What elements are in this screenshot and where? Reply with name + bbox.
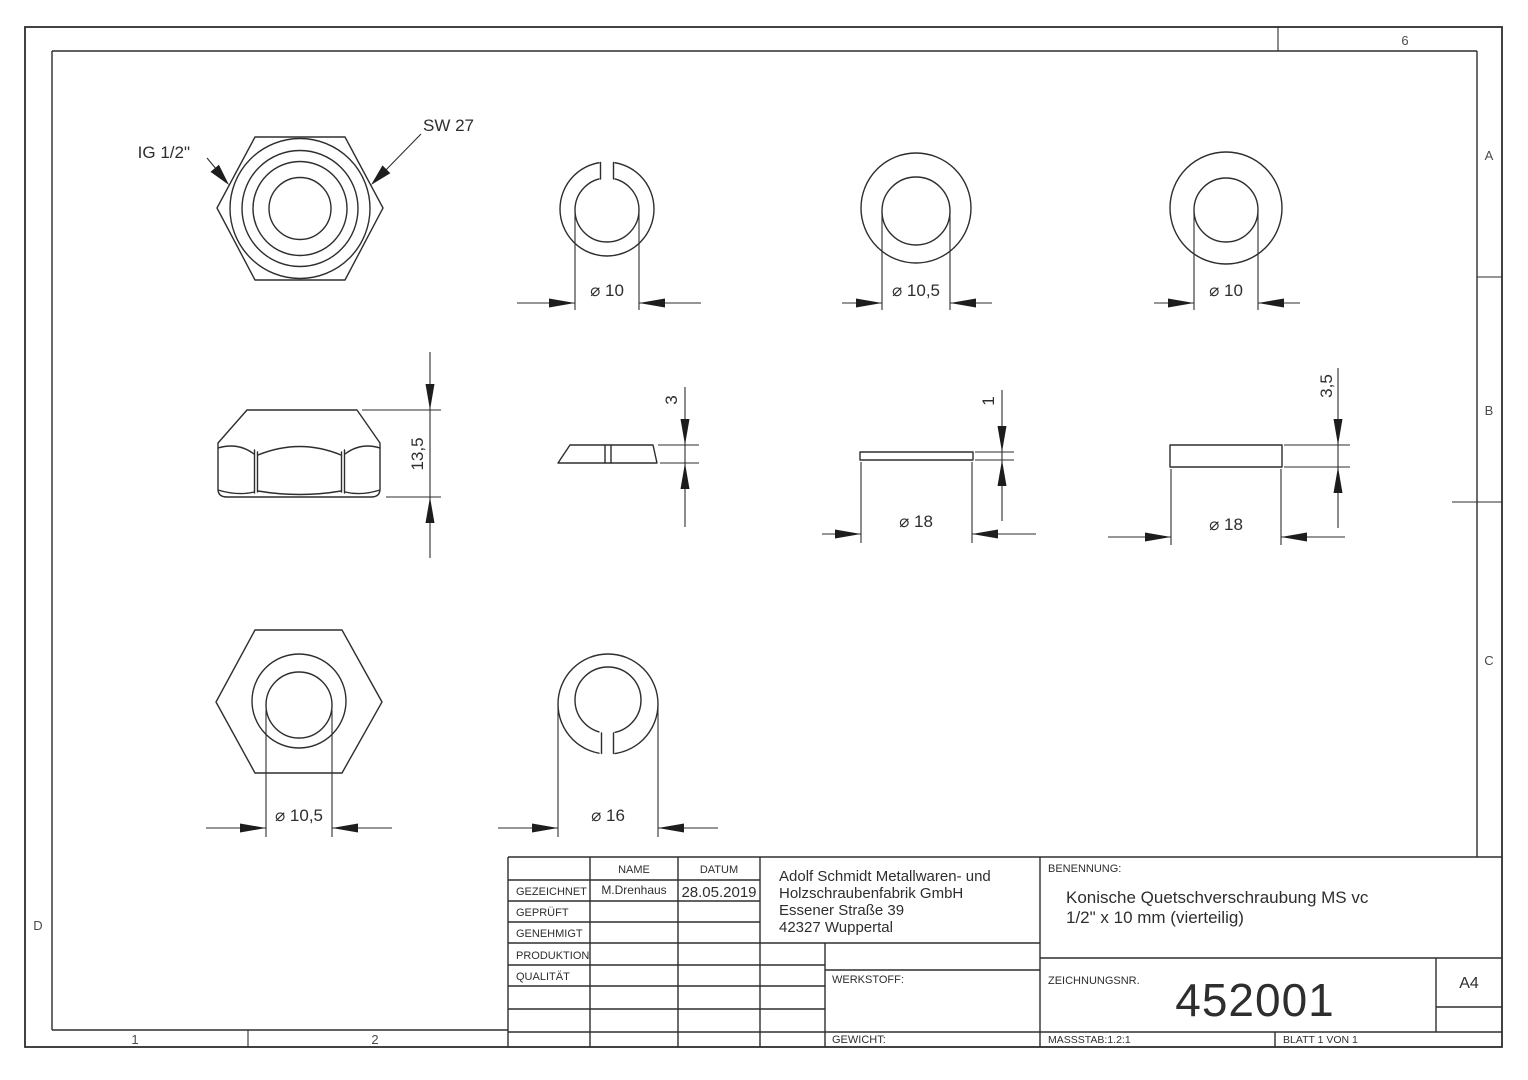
dimension-arrow xyxy=(998,460,1007,486)
part-circle xyxy=(861,153,971,263)
part-circle xyxy=(242,151,358,267)
dimension-arrow xyxy=(681,419,690,445)
zone-label-a: A xyxy=(1485,148,1494,163)
dimension-arrow xyxy=(240,824,266,833)
thread-label: IG 1/2" xyxy=(138,143,190,162)
company-line-4: 42327 Wuppertal xyxy=(779,919,893,936)
row-label-qualitaet: QUALITÄT xyxy=(516,971,570,983)
dimension-35: 3,5 xyxy=(1284,368,1350,528)
facet-arc xyxy=(218,490,254,494)
company-line-2: Holzschraubenfabrik GmbH xyxy=(779,885,963,902)
part-outline xyxy=(1170,445,1282,467)
facet-arc xyxy=(258,491,341,495)
dimension-arrow xyxy=(1168,299,1194,308)
view-nut-side: 13,5 xyxy=(218,352,441,558)
dimension-arrow xyxy=(1145,533,1171,542)
view-nut-back: ⌀ 10,5 xyxy=(206,630,392,837)
facet-arc xyxy=(345,446,380,454)
facet-arc xyxy=(345,490,380,494)
col-header-name: NAME xyxy=(618,864,650,876)
dimension-3: 3 xyxy=(658,387,699,527)
row-label-geprueft: GEPRÜFT xyxy=(516,907,569,919)
zeichnungsnr-label: ZEICHNUNGSNR. xyxy=(1048,975,1140,987)
part-outline xyxy=(860,452,973,460)
view-clamp-ring-outer: ⌀ 16 xyxy=(498,654,718,837)
dimension-text: ⌀ 16 xyxy=(591,806,625,825)
dimension-1: 1 xyxy=(975,390,1014,521)
part-outline-hexagon xyxy=(216,630,382,773)
dimension-arrow xyxy=(1258,299,1284,308)
dimension-arrow xyxy=(658,824,684,833)
dimension-arrow xyxy=(1334,419,1343,445)
row-label-produktion: PRODUKTION xyxy=(516,950,589,962)
drawing-canvas: 6 A B C D 1 2 IG 1/2" SW 27 xyxy=(0,0,1528,1080)
werkstoff-label: WERKSTOFF: xyxy=(832,974,904,986)
part-circle xyxy=(230,139,370,279)
col-header-datum: DATUM xyxy=(700,864,738,876)
zone-label-d: D xyxy=(33,918,42,933)
dimension-text: 13,5 xyxy=(408,437,427,470)
gewicht-label: GEWICHT: xyxy=(832,1034,886,1046)
dimension-arrow xyxy=(426,384,435,410)
part-circle-bore xyxy=(1194,178,1258,242)
view-clamp-ring-front: ⌀ 10 xyxy=(517,159,701,310)
slit-mask xyxy=(600,159,615,181)
dimension-arrow xyxy=(549,299,575,308)
company-line-3: Essener Straße 39 xyxy=(779,902,904,919)
part-circle-bore xyxy=(575,667,641,733)
part-circle xyxy=(1170,152,1282,264)
dimension-text: ⌀ 10 xyxy=(590,281,624,300)
part-circle-bore xyxy=(269,178,331,240)
dimension-arrow xyxy=(681,463,690,489)
dimension-arrow xyxy=(998,426,1007,452)
dimension-text: ⌀ 10,5 xyxy=(275,806,323,825)
dimension-d10: ⌀ 10 xyxy=(517,213,701,310)
zone-label-2: 2 xyxy=(371,1032,378,1047)
facet-arc xyxy=(258,447,341,456)
zone-label-b: B xyxy=(1485,403,1494,418)
view-ring-10-front: ⌀ 10 xyxy=(1154,152,1300,310)
dimension-text: ⌀ 18 xyxy=(899,512,933,531)
zone-label-c: C xyxy=(1484,653,1493,668)
drawing-sheet: 6 A B C D 1 2 IG 1/2" SW 27 xyxy=(0,0,1528,1080)
zone-label-1: 1 xyxy=(131,1032,138,1047)
part-circle-bore xyxy=(882,177,950,245)
part-outline xyxy=(218,410,380,497)
benennung-label: BENENNUNG: xyxy=(1048,863,1121,875)
drawing-number: 452001 xyxy=(1175,974,1335,1026)
company-line-1: Adolf Schmidt Metallwaren- und xyxy=(779,868,991,885)
row-label-gezeichnet: GEZEICHNET xyxy=(516,886,587,898)
part-title-line-1: Konische Quetschverschraubung MS vc xyxy=(1066,888,1369,907)
gezeichnet-datum: 28.05.2019 xyxy=(681,884,756,901)
dimension-d18b: ⌀ 18 xyxy=(1108,469,1345,545)
dimension-text: ⌀ 10,5 xyxy=(892,281,940,300)
part-circle-bore xyxy=(575,178,639,242)
dimension-arrow xyxy=(332,824,358,833)
dimension-arrow xyxy=(426,497,435,523)
view-washer-thick-side: 3,5 ⌀ 18 xyxy=(1108,368,1350,545)
dimension-135: 13,5 xyxy=(362,352,441,558)
sheet-format: A4 xyxy=(1459,975,1479,992)
facet-arc xyxy=(218,446,254,454)
view-nut-front: IG 1/2" SW 27 xyxy=(138,116,474,280)
gezeichnet-name: M.Drenhaus xyxy=(601,883,666,897)
title-block: NAME DATUM GEZEICHNET M.Drenhaus 28.05.2… xyxy=(508,857,1502,1047)
dimension-text: 3,5 xyxy=(1317,374,1336,398)
massstab-value: MASSSTAB:1.2:1 xyxy=(1048,1034,1131,1046)
dimension-arrow xyxy=(835,530,861,539)
view-clamp-ring-side: 3 xyxy=(558,387,699,527)
dimension-text: ⌀ 10 xyxy=(1209,281,1243,300)
zone-label-6: 6 xyxy=(1401,33,1408,48)
dimension-arrow xyxy=(856,299,882,308)
dimension-text: 3 xyxy=(662,395,681,404)
view-ring-105-front: ⌀ 10,5 xyxy=(842,153,992,310)
dimension-arrow xyxy=(1334,467,1343,493)
part-circle xyxy=(253,162,347,256)
part-title-line-2: 1/2" x 10 mm (vierteilig) xyxy=(1066,908,1244,927)
wrench-label: SW 27 xyxy=(423,116,474,135)
part-circle-bore xyxy=(266,672,332,738)
dimension-arrow xyxy=(950,299,976,308)
leader-arrow xyxy=(211,165,230,185)
dimension-arrow xyxy=(1281,533,1307,542)
dimension-arrow xyxy=(532,824,558,833)
blatt-value: BLATT 1 VON 1 xyxy=(1283,1034,1358,1046)
part-outline xyxy=(558,445,657,463)
view-washer-thin-side: 1 ⌀ 18 xyxy=(822,390,1036,543)
dimension-text: 1 xyxy=(979,396,998,405)
row-label-genehmigt: GENEHMIGT xyxy=(516,928,583,940)
dimension-d16: ⌀ 16 xyxy=(498,706,718,837)
dimension-arrow xyxy=(639,299,665,308)
dimension-arrow xyxy=(972,530,998,539)
dimension-text: ⌀ 18 xyxy=(1209,515,1243,534)
